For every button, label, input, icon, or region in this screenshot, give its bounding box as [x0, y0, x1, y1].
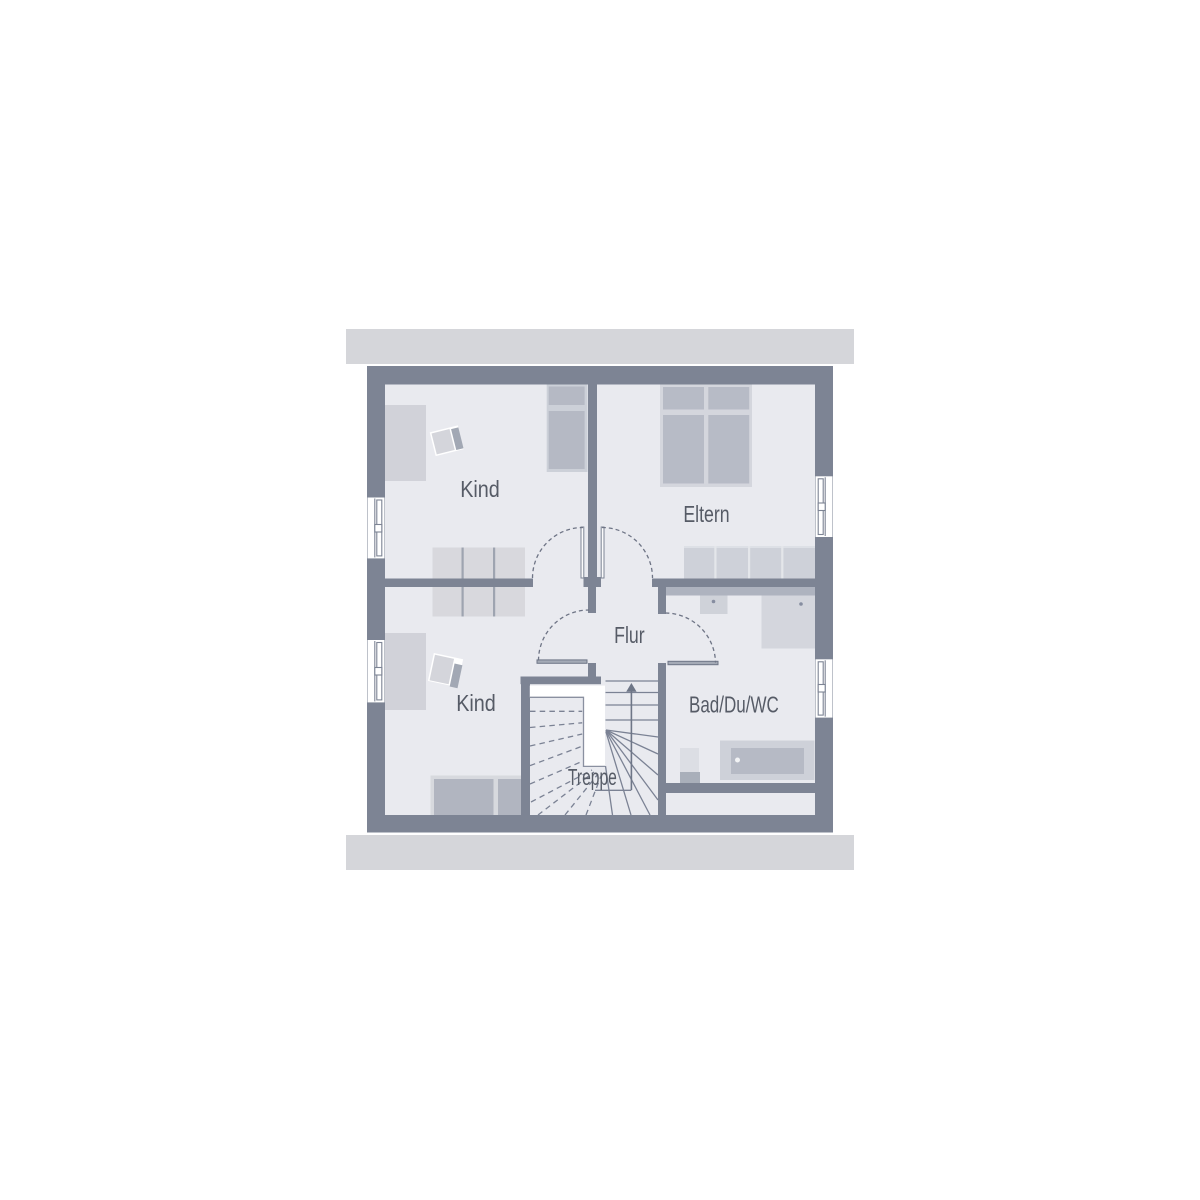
svg-text:Flur: Flur: [614, 623, 645, 649]
svg-text:Kind: Kind: [456, 691, 496, 717]
svg-text:Kind: Kind: [460, 477, 500, 503]
svg-text:Treppe: Treppe: [568, 765, 617, 791]
svg-text:Bad/Du/WC: Bad/Du/WC: [689, 693, 779, 718]
svg-text:Eltern: Eltern: [683, 502, 729, 528]
